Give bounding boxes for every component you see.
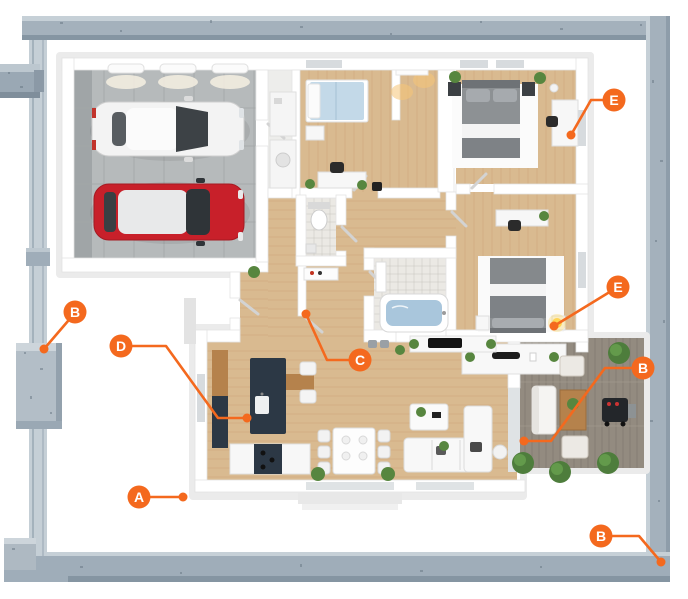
patio-chair [562, 436, 588, 458]
kitchen-counter [230, 444, 310, 474]
callout-target-dot [520, 437, 529, 446]
entry-step [184, 298, 196, 344]
callout-target-dot [302, 310, 311, 319]
tall-cabinet-wood [212, 350, 228, 396]
frame-bracket-top-left [0, 64, 44, 98]
callout-target-dot [40, 345, 49, 354]
callout-letter: B [70, 304, 80, 320]
frame-pillar-left [16, 343, 62, 429]
callout-target-dot [567, 131, 576, 140]
red-car [90, 178, 250, 246]
laundry-room [270, 92, 296, 188]
callout-letter: E [613, 279, 622, 295]
callout-letter: C [355, 352, 365, 368]
outdoor-sofa [532, 386, 556, 434]
callout-letter: B [638, 360, 648, 376]
callout-letter: E [609, 92, 618, 108]
window-plant [381, 467, 395, 481]
tv-sideboard [409, 336, 496, 352]
double-bed [462, 80, 520, 158]
patio-chair [560, 356, 584, 376]
white-car [90, 96, 250, 162]
coffee-table [410, 404, 448, 430]
floor-plan-svg: ABBBCDEE [0, 0, 688, 599]
nightstand [306, 126, 324, 140]
scene: ABBBCDEE [0, 0, 688, 599]
nightstand [448, 82, 461, 96]
sink [376, 262, 386, 292]
nightstand [476, 316, 489, 330]
dining-set [318, 428, 390, 474]
callout-target-dot [243, 414, 252, 423]
garage-ceiling-lights [106, 64, 250, 89]
bathtub [380, 294, 448, 332]
callout-letter: A [134, 489, 144, 505]
callout-target-dot [657, 558, 666, 567]
callout-letter: D [116, 338, 126, 354]
breakfast-bar [286, 374, 314, 390]
callout-target-dot [179, 493, 188, 502]
callout-letter: B [596, 528, 606, 544]
callout-a: A [128, 486, 188, 509]
window-plant [311, 467, 325, 481]
callout-target-dot [550, 322, 559, 331]
double-bed [490, 258, 546, 333]
nightstand [522, 82, 535, 96]
single-bed [306, 80, 368, 122]
tall-cabinet-dark [212, 396, 228, 448]
side-lamp [493, 445, 507, 459]
